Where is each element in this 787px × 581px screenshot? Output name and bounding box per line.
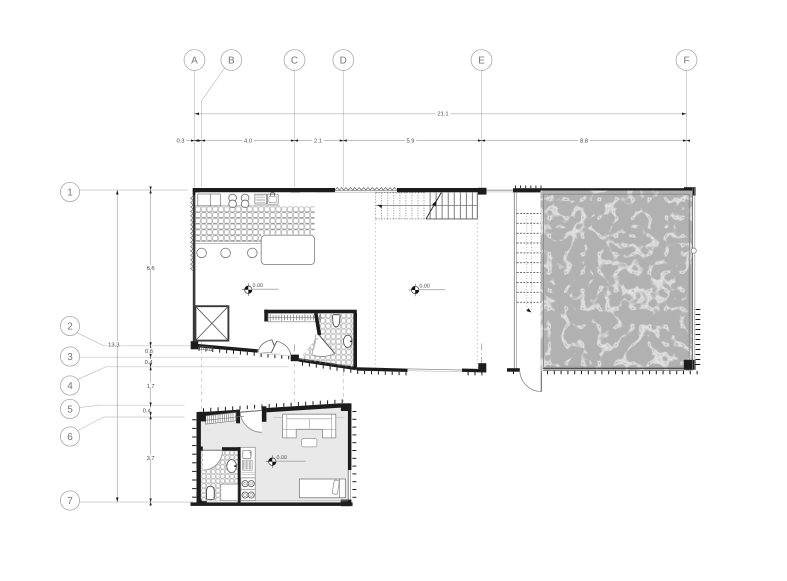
svg-text:5.9: 5.9 (406, 138, 414, 145)
svg-text:C: C (291, 55, 298, 66)
svg-text:21.1: 21.1 (437, 110, 448, 117)
svg-text:0.6: 0.6 (145, 348, 153, 355)
svg-text:0.4: 0.4 (143, 407, 152, 414)
svg-text:0.3: 0.3 (176, 138, 184, 145)
svg-text:6.6: 6.6 (147, 265, 155, 272)
svg-text:D: D (340, 55, 347, 66)
svg-text:E: E (478, 55, 485, 66)
svg-text:4: 4 (67, 381, 73, 392)
svg-text:0.00: 0.00 (253, 283, 264, 289)
svg-text:4.0: 4.0 (244, 138, 252, 145)
svg-text:8.8: 8.8 (580, 138, 588, 145)
svg-text:0.00: 0.00 (419, 283, 430, 289)
svg-text:3.7: 3.7 (147, 455, 155, 462)
svg-text:F: F (683, 55, 689, 66)
svg-text:6: 6 (67, 432, 73, 443)
svg-text:1: 1 (67, 187, 73, 198)
svg-text:2.1: 2.1 (314, 138, 322, 145)
svg-text:2: 2 (67, 321, 73, 332)
svg-text:13.3: 13.3 (108, 341, 119, 348)
svg-text:7: 7 (67, 496, 73, 507)
svg-text:B: B (228, 55, 235, 66)
svg-text:1.7: 1.7 (147, 384, 155, 390)
svg-text:3: 3 (67, 352, 73, 363)
svg-text:A: A (191, 55, 198, 66)
svg-text:0.4: 0.4 (145, 359, 154, 366)
svg-text:5: 5 (67, 404, 73, 415)
svg-text:0.00: 0.00 (277, 455, 288, 461)
